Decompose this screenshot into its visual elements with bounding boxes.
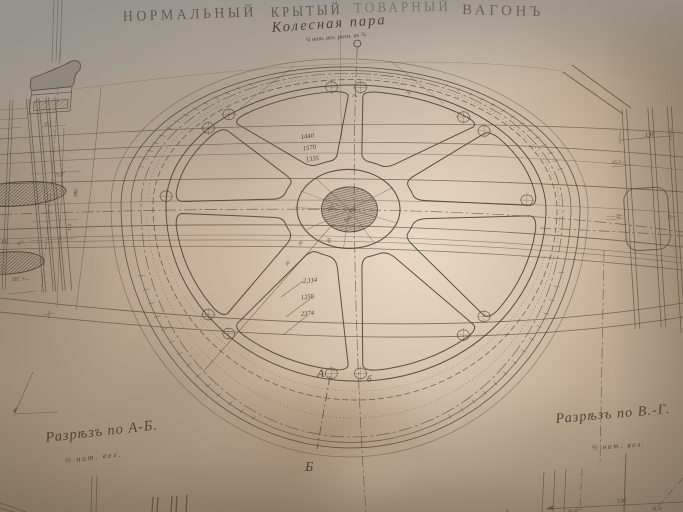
svg-text:2,114: 2,114 — [303, 277, 319, 285]
svg-text:1258: 1258 — [301, 293, 315, 301]
svg-text:2374: 2374 — [301, 310, 315, 318]
svg-text:А: А — [316, 366, 325, 380]
svg-text:50: 50 — [284, 259, 291, 266]
svg-text:130: 130 — [617, 499, 626, 505]
svg-text:1335: 1335 — [305, 155, 320, 164]
svg-text:15: 15 — [668, 214, 673, 220]
svg-text:Разрѣзъ по А-Б.: Разрѣзъ по А-Б. — [44, 417, 158, 446]
svg-text:72,5°: 72,5° — [54, 172, 66, 179]
svg-text:60: 60 — [326, 237, 332, 243]
svg-text:403: 403 — [1, 240, 9, 245]
svg-text:Б: Б — [304, 460, 313, 475]
svg-text:1570: 1570 — [302, 144, 317, 153]
svg-text:½ нат. вел.: ½ нат. вел. — [64, 450, 121, 465]
svg-text:1440: 1440 — [300, 132, 315, 141]
svg-text:900: 900 — [74, 189, 80, 197]
svg-text:1¼: 1¼ — [352, 93, 358, 98]
svg-text:4.: 4. — [506, 508, 509, 512]
svg-text:б: б — [367, 374, 372, 384]
svg-text:¼ нат. вел. разм. въ ¾: ¼ нат. вел. разм. въ ¾ — [306, 31, 367, 43]
svg-text:ВАГОНЪ: ВАГОНЪ — [462, 2, 544, 20]
svg-text:Разрѣзъ по В.-Г.: Разрѣзъ по В.-Г. — [554, 402, 670, 427]
svg-text:12: 12 — [617, 213, 622, 219]
svg-text:130: 130 — [645, 131, 656, 139]
svg-text:115: 115 — [68, 223, 74, 231]
svg-text:41,25: 41,25 — [568, 508, 579, 512]
svg-text:41,25: 41,25 — [652, 506, 663, 512]
svg-text:НОРМАЛЬНЫЙ: НОРМАЛЬНЫЙ — [123, 3, 258, 25]
svg-text:ПТ. 7—: ПТ. 7— — [11, 277, 29, 283]
svg-text:½ нат. вел.: ½ нат. вел. — [592, 439, 645, 452]
svg-text:10: 10 — [405, 89, 412, 96]
svg-text:25,5—: 25,5— — [612, 160, 626, 166]
svg-text:7: 7 — [398, 82, 404, 88]
